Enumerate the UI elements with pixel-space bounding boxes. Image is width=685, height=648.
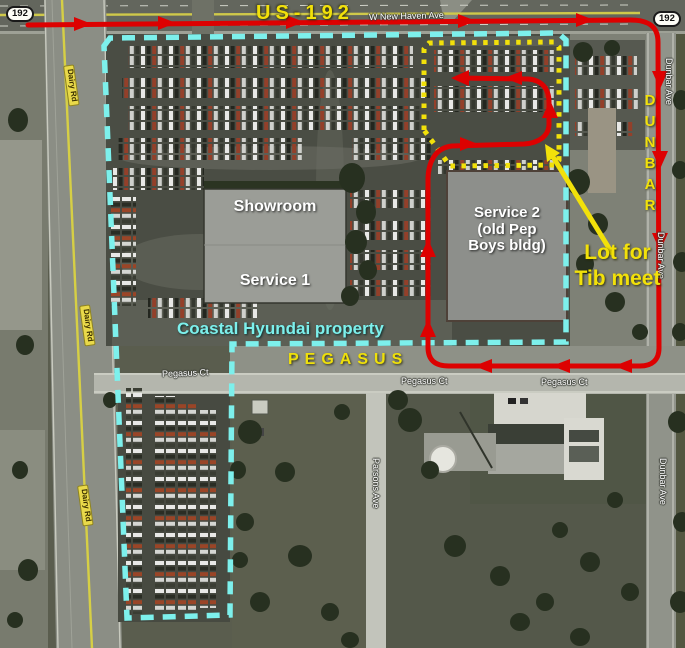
road-parsons (366, 393, 386, 648)
annotated-satellite-map: 192 192 US-192 W New Haven Ave DUNBAR Du… (0, 0, 685, 648)
service2-line2: (old Pep (448, 222, 566, 239)
dunbar-ave-label-3: Dunbar Ave (657, 458, 667, 505)
pegasus-ct-label-2: Pegasus Ct (401, 377, 448, 387)
lot-note-line1: Lot for (570, 240, 665, 266)
parsons-ave-label: Parsons Ave (370, 458, 380, 508)
lot-note-line2: Tib meet (570, 266, 665, 292)
dunbar-label: DUNBAR (641, 92, 658, 218)
pegasus-label: PEGASUS (288, 351, 408, 369)
service2-line1: Service 2 (448, 205, 566, 222)
dunbar-ave-label-1: Dunbar Ave (663, 58, 673, 105)
us192-label: US-192 (256, 2, 354, 24)
building-neighbor (588, 108, 616, 193)
service1-label: Service 1 (205, 272, 345, 290)
property-label: Coastal Hyundai property (177, 320, 384, 339)
pegasus-ct-label-3: Pegasus Ct (541, 378, 588, 388)
pegasus-ct-label-1: Pegasus Ct (162, 368, 209, 380)
service2-line3: Boys bldg) (448, 238, 566, 255)
w-new-haven-ave-label: W New Haven Ave (369, 11, 444, 23)
route-shield-192-right: 192 (653, 11, 681, 27)
route-shield-192-left: 192 (6, 6, 34, 22)
service2-label: Service 2 (old Pep Boys bldg) (448, 205, 566, 255)
lot-note-label: Lot for Tib meet (570, 240, 665, 292)
showroom-label: Showroom (205, 198, 345, 216)
